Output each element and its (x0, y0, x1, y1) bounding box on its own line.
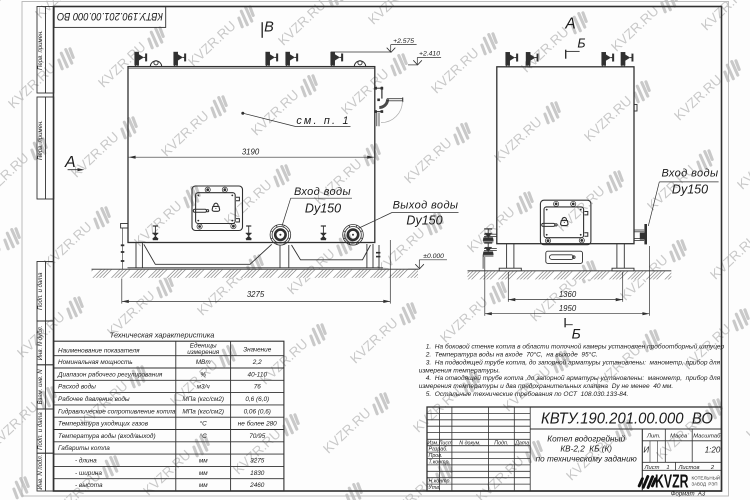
svg-text:+2.575: +2.575 (393, 38, 414, 45)
svg-text:KVZR: KVZR (655, 472, 689, 492)
svg-text:И: И (643, 446, 649, 455)
svg-text:Номинальная мощность: Номинальная мощность (58, 359, 133, 366)
svg-text:не более 280: не более 280 (238, 420, 277, 428)
svg-text:Габариты котла: Габариты котла (58, 444, 110, 452)
svg-text:0,6 (6,0): 0,6 (6,0) (245, 396, 269, 403)
svg-text:м3/ч: м3/ч (197, 384, 211, 391)
svg-text:Температура воды (вход/выход): Температура воды (вход/выход) (58, 432, 156, 440)
svg-text:Масса: Масса (670, 434, 688, 440)
svg-text:Масштаб: Масштаб (693, 434, 721, 440)
svg-text:Разраб.: Разраб. (429, 447, 448, 453)
svg-text:Листов: Листов (677, 465, 699, 471)
svg-text:Котел водогрейный: Котел водогрейный (547, 434, 625, 443)
svg-text:2460: 2460 (249, 482, 265, 489)
svg-text:3275: 3275 (250, 457, 265, 464)
svg-text:измерения: измерения (187, 349, 220, 356)
svg-text:А: А (564, 16, 575, 33)
svg-text:Лист: Лист (644, 465, 660, 471)
svg-text:мм: мм (199, 482, 208, 489)
svg-text:МПа (кгс/см2): МПа (кгс/см2) (182, 396, 224, 403)
svg-text:Перв. примен.: Перв. примен. (38, 30, 44, 70)
svg-text:Б: Б (577, 37, 585, 51)
svg-text:Инв. N подл.: Инв. N подл. (38, 455, 44, 490)
svg-text:Вход воды: Вход воды (294, 186, 351, 198)
svg-text:Лит.: Лит. (646, 434, 661, 440)
svg-text:2,2: 2,2 (252, 359, 262, 366)
svg-text:Наименование показателя: Наименование показателя (58, 347, 140, 354)
svg-text:Формат А3: Формат А3 (671, 492, 706, 498)
svg-text:см. п. 1: см. п. 1 (296, 115, 350, 127)
svg-text:измерения температуры и два пр: измерения температуры и два предохраните… (419, 382, 674, 390)
svg-text:76: 76 (254, 384, 262, 391)
svg-text:Гидравлическое сопротивление к: Гидравлическое сопротивление котла (58, 407, 176, 415)
svg-text:4. На отводящей трубе котла ,: 4. На отводящей трубе котла ,до запорной… (426, 374, 721, 382)
svg-text:Пров.: Пров. (429, 453, 443, 459)
svg-text:Температура уходящих газов: Температура уходящих газов (58, 420, 149, 428)
svg-text:1950: 1950 (559, 304, 577, 313)
svg-text:КВТУ.190.201.00.000 ВО: КВТУ.190.201.00.000 ВО (57, 10, 163, 22)
svg-text:3190: 3190 (242, 148, 260, 157)
svg-text:- длина: - длина (75, 456, 97, 464)
svg-text:Dy150: Dy150 (305, 201, 341, 215)
svg-text:Вход воды: Вход воды (662, 168, 719, 180)
svg-text:%: % (200, 371, 206, 378)
svg-text:Утв.: Утв. (429, 485, 441, 491)
svg-text:Лист: Лист (438, 440, 453, 446)
svg-text:- ширина: - ширина (75, 470, 102, 477)
svg-text:Подп. и дата: Подп. и дата (38, 272, 44, 310)
svg-text:Т.контр.: Т.контр. (429, 460, 450, 466)
svg-text:Подп. и дата: Подп. и дата (38, 412, 44, 450)
svg-text:Расход воды: Расход воды (58, 383, 96, 391)
svg-text:Б: Б (572, 326, 581, 342)
svg-text:1360: 1360 (559, 290, 577, 299)
svg-text:Диапазон рабочего регулировани: Диапазон рабочего регулирования (57, 370, 163, 378)
svg-text:В: В (264, 19, 274, 35)
svg-text:- высота: - высота (75, 482, 103, 489)
svg-text:Техническая характеристика: Техническая характеристика (110, 331, 215, 340)
svg-text:0,06 (0,6): 0,06 (0,6) (244, 408, 271, 415)
svg-text:1. На боковой стенке котла в: 1. На боковой стенке котла в области топ… (426, 343, 725, 351)
svg-text:по техническому заданию: по техническому заданию (536, 454, 637, 463)
svg-text:А: А (64, 154, 76, 171)
svg-text:3. На подводящей трубе котла,: 3. На подводящей трубе котла, до запорно… (426, 358, 721, 366)
svg-text:70/95: 70/95 (249, 433, 265, 440)
svg-text:МПа (кгс/см2): МПа (кгс/см2) (182, 408, 224, 415)
svg-text:Выход воды: Выход воды (393, 200, 459, 212)
svg-text:мм: мм (199, 470, 208, 477)
svg-text:КВ-2,2 КБ (К): КВ-2,2 КБ (К) (560, 444, 612, 453)
svg-text:Перв. примен.: Перв. примен. (38, 120, 44, 160)
svg-text:МВт: МВт (196, 359, 212, 366)
svg-text:+2.410: +2.410 (419, 51, 440, 58)
svg-text:КВТУ.190.201.00.000 ВО: КВТУ.190.201.00.000 ВО (541, 410, 713, 427)
svg-text:40-110: 40-110 (248, 371, 268, 378)
svg-text:±0.000: ±0.000 (423, 253, 444, 260)
svg-text:Подп.: Подп. (494, 440, 508, 446)
svg-text:Н.контр.: Н.контр. (429, 479, 451, 485)
svg-text:ЗАВОД РЭП: ЗАВОД РЭП (692, 482, 718, 488)
svg-text:1: 1 (666, 465, 669, 471)
svg-text:3275: 3275 (247, 290, 265, 299)
svg-text:N докум.: N докум. (459, 440, 480, 446)
svg-text:измерения температуры.: измерения температуры. (419, 367, 501, 374)
svg-text:Изм.: Изм. (427, 440, 438, 446)
svg-text:5. Остальные технические треб: 5. Остальные технические требования по О… (426, 390, 629, 398)
svg-text:Взам. инв. N: Взам. инв. N (38, 369, 44, 405)
svg-text:Инв. N дубл.: Инв. N дубл. (38, 326, 44, 361)
svg-text:Дата: Дата (514, 440, 529, 446)
svg-text:°С: °С (200, 420, 208, 428)
svg-text:1:20: 1:20 (705, 446, 721, 455)
svg-text:2. Температура воды на входе: 2. Температура воды на входе 70°С, на вы… (425, 351, 598, 359)
svg-text:1830: 1830 (250, 470, 265, 477)
svg-text:Dy150: Dy150 (406, 214, 442, 228)
svg-text:мм: мм (199, 457, 208, 464)
svg-text:°С: °С (200, 432, 208, 440)
svg-text:Рабочее давление воды: Рабочее давление воды (58, 395, 130, 403)
svg-text:Dy150: Dy150 (672, 182, 708, 196)
svg-text:Значение: Значение (243, 346, 271, 353)
